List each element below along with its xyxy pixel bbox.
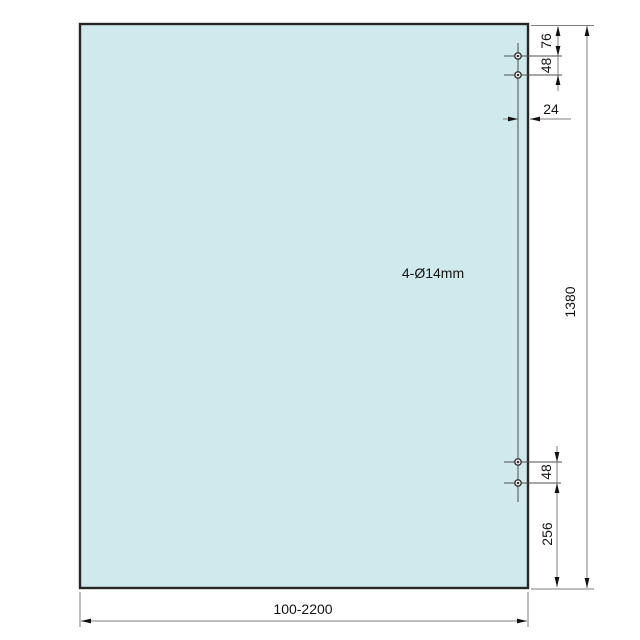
glass-panel — [80, 24, 528, 588]
arrowhead-up-icon — [556, 75, 561, 85]
dim-width-label: 100-2200 — [273, 601, 332, 617]
arrowhead-down-icon — [555, 452, 560, 462]
arrowhead-down-icon — [585, 578, 590, 588]
dim-76-label: 76 — [538, 33, 554, 49]
hole-top-2 — [515, 72, 521, 78]
hole-top-1 — [515, 53, 521, 59]
hole-bottom-1 — [515, 459, 521, 465]
dim-48-bottom-label: 48 — [538, 464, 554, 480]
arrowhead-right-icon — [517, 619, 527, 624]
holes-annotation: 4-Ø14mm — [402, 265, 464, 281]
dim-24-label: 24 — [543, 101, 559, 117]
drawing-canvas: 100-2200 1380 76 48 24 — [0, 0, 640, 640]
hole-bottom-2 — [515, 480, 521, 486]
arrowhead-up-icon — [555, 483, 560, 493]
arrowhead-up-icon — [585, 26, 590, 36]
arrowhead-down-icon — [556, 46, 561, 56]
arrowhead-left-icon — [530, 117, 540, 122]
dim-256-label: 256 — [539, 522, 555, 546]
dim-48-top-label: 48 — [538, 58, 554, 74]
arrowhead-left-icon — [81, 619, 91, 624]
dim-width: 100-2200 — [80, 592, 528, 627]
dim-height-label: 1380 — [562, 286, 578, 317]
arrowhead-down-icon — [555, 577, 560, 587]
arrowhead-up-icon — [556, 26, 561, 36]
dim-height: 1380 — [531, 26, 594, 590]
technical-drawing: 100-2200 1380 76 48 24 — [0, 0, 640, 640]
